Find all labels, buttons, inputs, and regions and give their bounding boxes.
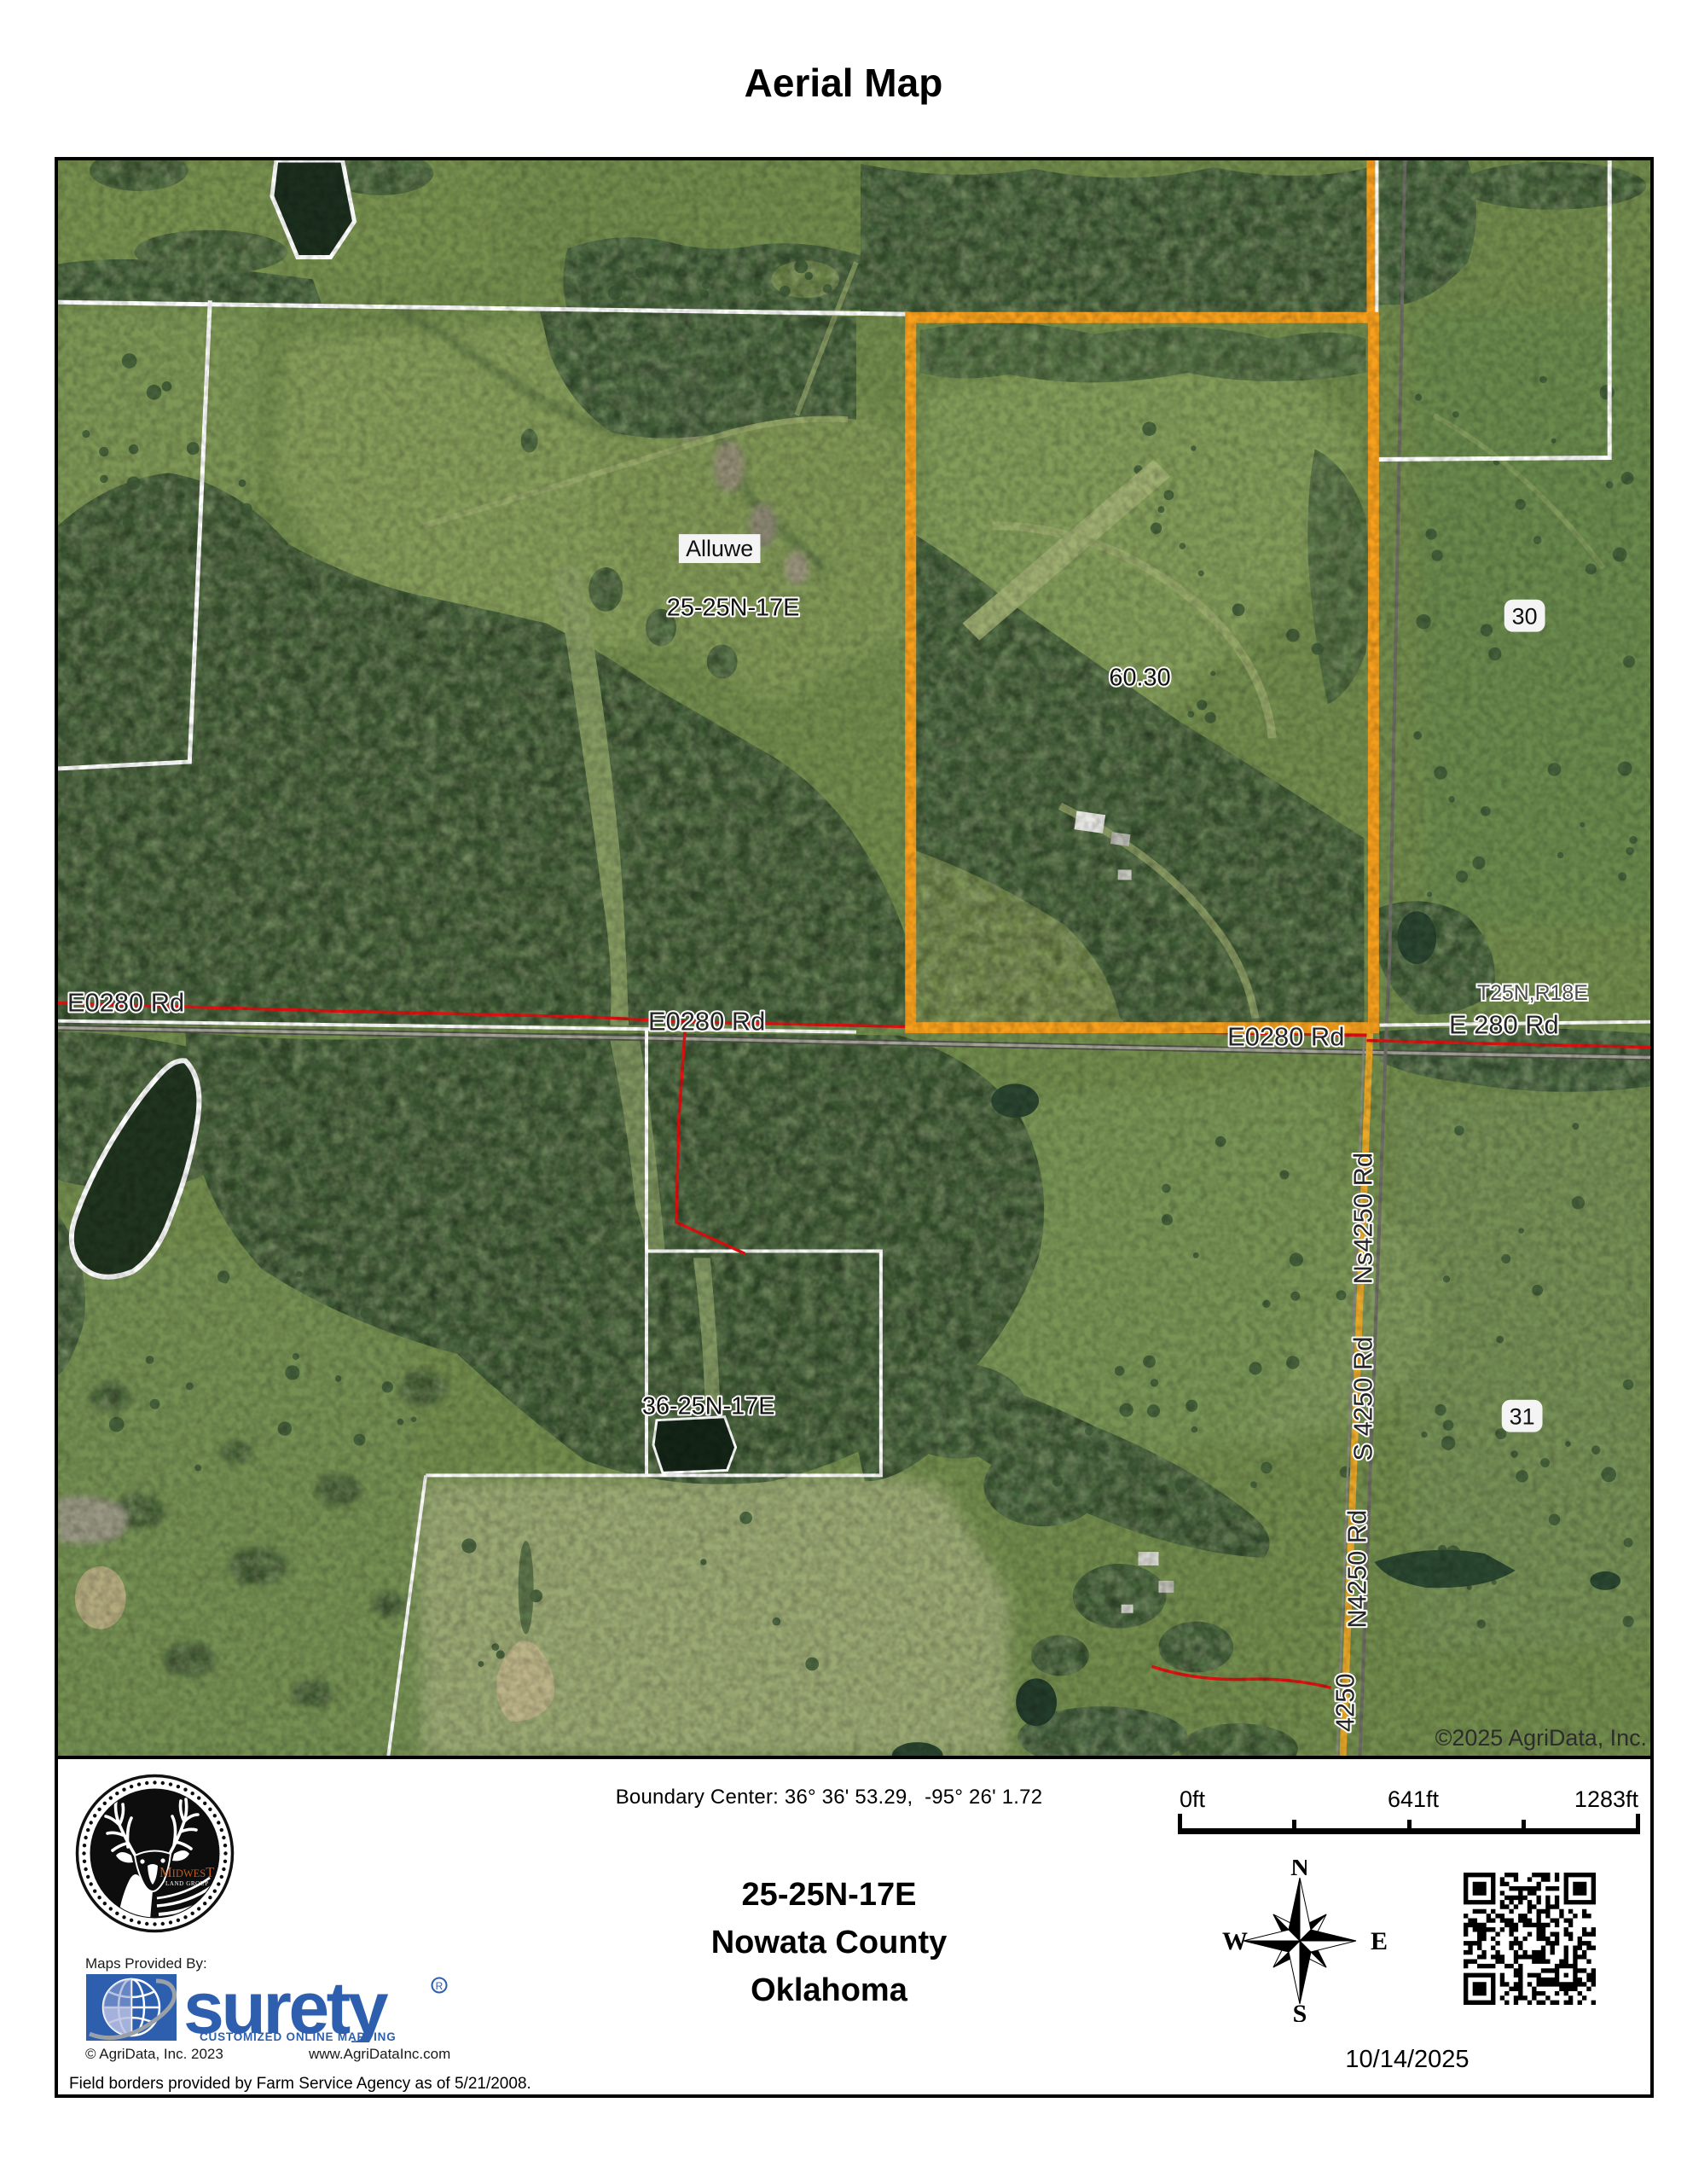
svg-text:36-25N-17E: 36-25N-17E bbox=[642, 1393, 775, 1420]
svg-text:4250: 4250 bbox=[1330, 1673, 1359, 1732]
svg-text:Ns4250 Rd: Ns4250 Rd bbox=[1348, 1153, 1377, 1284]
svg-text:E0280 Rd: E0280 Rd bbox=[1227, 1022, 1344, 1052]
svg-text:31: 31 bbox=[1510, 1404, 1535, 1430]
svg-text:25-25N-17E: 25-25N-17E bbox=[667, 595, 800, 622]
svg-text:E 280 Rd: E 280 Rd bbox=[1449, 1010, 1559, 1040]
svg-text:CUSTOMIZED ONLINE MAPPING: CUSTOMIZED ONLINE MAPPING bbox=[200, 2030, 397, 2042]
svg-text:60.30: 60.30 bbox=[1109, 664, 1170, 691]
svg-text:E: E bbox=[1371, 1927, 1388, 1955]
svg-text:W: W bbox=[1222, 1927, 1248, 1955]
svg-text:S 4250 Rd: S 4250 Rd bbox=[1348, 1337, 1377, 1461]
svg-text:©2025 AgriData, Inc.: ©2025 AgriData, Inc. bbox=[1435, 1725, 1647, 1751]
svg-text:E0280 Rd: E0280 Rd bbox=[67, 988, 184, 1018]
svg-text:Alluwe: Alluwe bbox=[686, 536, 753, 561]
svg-text:N: N bbox=[1290, 1860, 1309, 1881]
svg-text:S: S bbox=[1293, 2000, 1307, 2022]
svg-text:N4250 Rd: N4250 Rd bbox=[1342, 1510, 1371, 1629]
svg-text:R: R bbox=[436, 1980, 443, 1992]
svg-text:T25N,R18E: T25N,R18E bbox=[1477, 981, 1588, 1005]
svg-text:E0280 Rd: E0280 Rd bbox=[648, 1007, 765, 1037]
svg-text:30: 30 bbox=[1512, 604, 1538, 630]
